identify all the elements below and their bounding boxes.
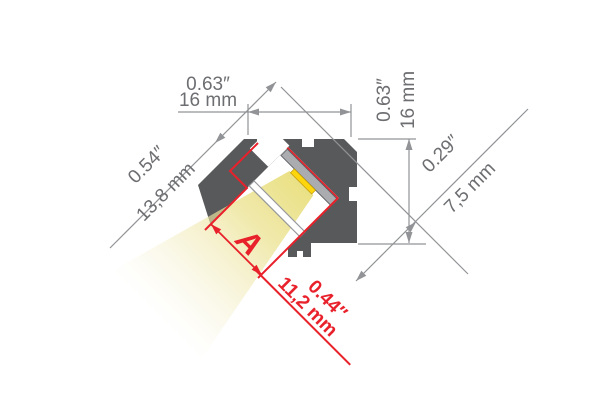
dim-top-width: 0.63″ 16 mm [178,74,351,137]
technical-drawing-canvas: A 0.44″ 11,2 mm 0.63″ 16 mm 0.63″ 16 mm … [0,0,600,405]
dim-right-mm-label: 16 mm [398,71,419,129]
dim-right-inches-label: 0.63″ [374,78,395,122]
profile-dimension-drawing: A 0.44″ 11,2 mm 0.63″ 16 mm 0.63″ 16 mm … [0,0,600,405]
dim-right-height: 0.63″ 16 mm [358,71,426,244]
dim-top-mm-label: 16 mm [179,90,237,111]
dim-offset-inches-label: 0.29″ [418,131,464,177]
